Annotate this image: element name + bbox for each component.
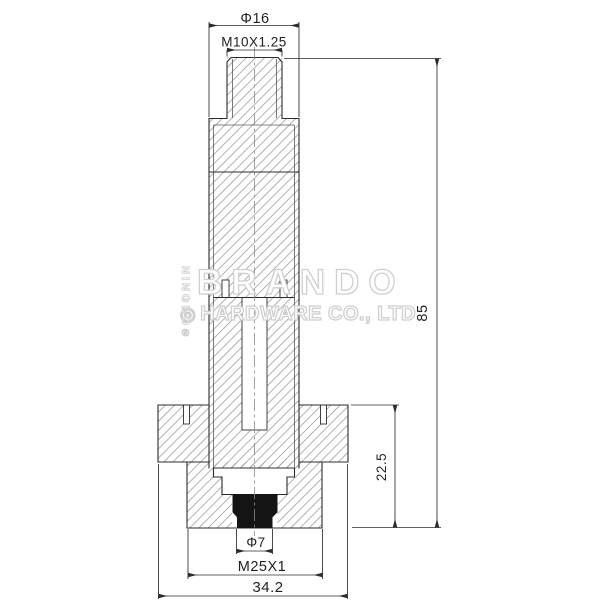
spring-slot-left — [222, 280, 229, 298]
dim-label-top-diameter: Φ16 — [240, 11, 269, 27]
technical-drawing-page: Φ16 M10X1.25 85 22.5 Φ7 M25X1 34.2 BRAND… — [0, 0, 600, 600]
flange-groove-left — [184, 405, 190, 424]
spring-slot-right — [280, 280, 287, 298]
dim-label-bottom-thread: M25X1 — [238, 559, 286, 575]
part-cross-section — [158, 58, 348, 529]
dim-label-top-thread: M10X1.25 — [221, 35, 287, 50]
dim-label-flange-width: 34.2 — [252, 579, 283, 596]
technical-drawing-canvas: Φ16 M10X1.25 85 22.5 Φ7 M25X1 34.2 — [0, 0, 600, 600]
flange-groove-right — [321, 405, 327, 424]
seal-pocket-upper — [214, 468, 295, 477]
dim-label-lower-height: 22.5 — [374, 453, 389, 481]
rubber-seal — [233, 495, 277, 528]
dim-label-overall-height: 85 — [415, 304, 431, 321]
dim-label-seal-diameter: Φ7 — [246, 535, 265, 550]
